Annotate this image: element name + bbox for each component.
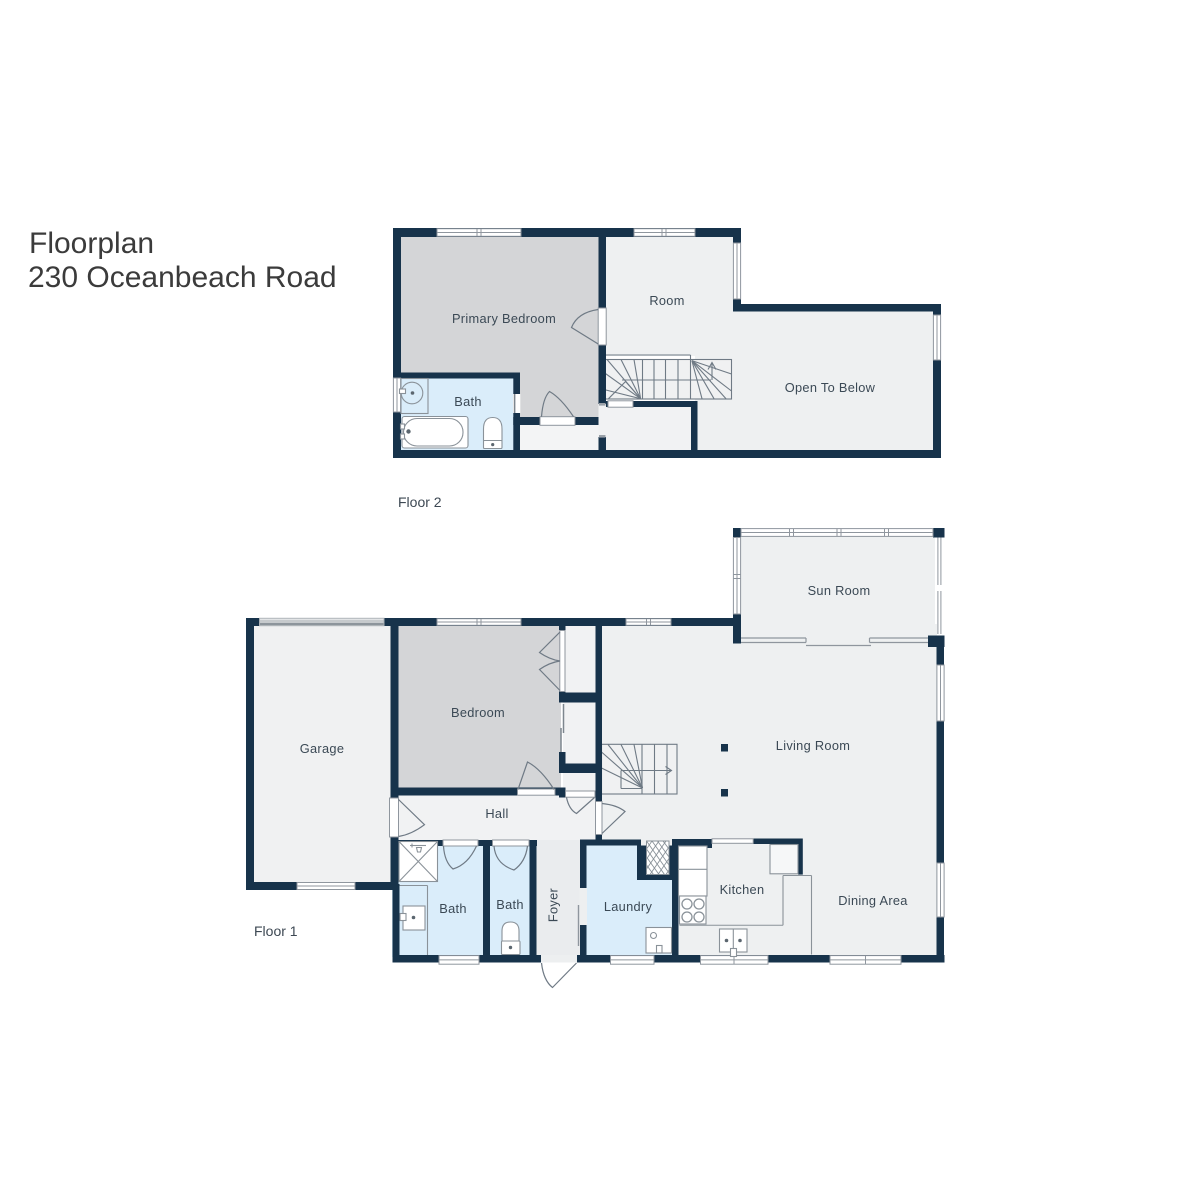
svg-text:Floor 2: Floor 2 [398,494,442,510]
svg-text:Floorplan: Floorplan [29,227,154,260]
svg-text:Sun Room: Sun Room [808,583,871,598]
svg-text:Garage: Garage [300,741,344,756]
svg-text:Bath: Bath [496,897,524,912]
svg-text:Room: Room [649,293,684,308]
svg-text:Laundry: Laundry [604,899,653,914]
svg-text:Floor 1: Floor 1 [254,923,298,939]
svg-text:Kitchen: Kitchen [720,882,765,897]
svg-text:Foyer: Foyer [546,887,561,922]
svg-text:Dining Area: Dining Area [838,893,908,908]
svg-text:Open To Below: Open To Below [785,380,876,395]
svg-text:Living Room: Living Room [776,738,850,753]
svg-text:Hall: Hall [485,806,508,821]
svg-text:Bedroom: Bedroom [451,705,505,720]
svg-text:Bath: Bath [454,394,482,409]
svg-text:Primary Bedroom: Primary Bedroom [452,311,556,326]
svg-text:Bath: Bath [439,901,467,916]
svg-text:230 Oceanbeach Road: 230 Oceanbeach Road [28,261,337,294]
